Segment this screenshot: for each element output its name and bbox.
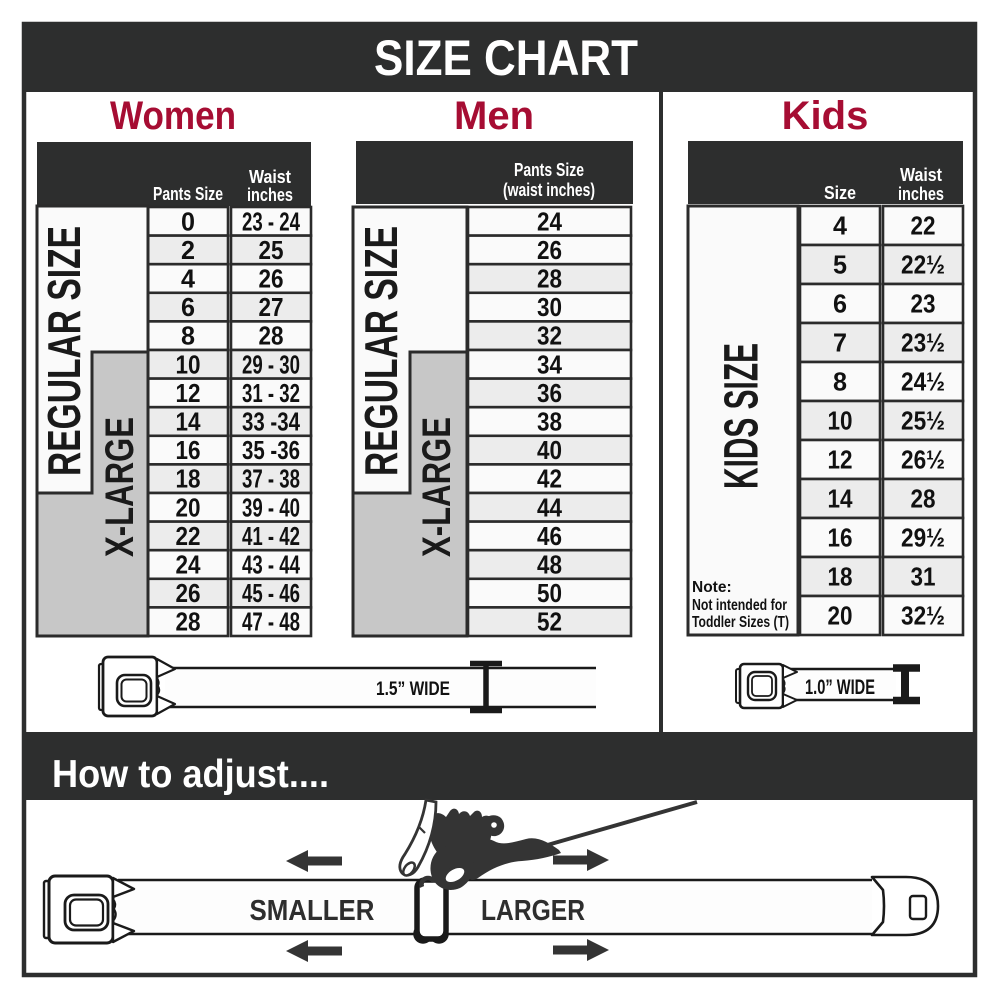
svg-text:24: 24 xyxy=(176,550,201,580)
svg-text:22: 22 xyxy=(911,211,936,241)
svg-text:25½: 25½ xyxy=(901,406,945,436)
svg-text:50: 50 xyxy=(537,578,562,608)
svg-text:52: 52 xyxy=(537,607,562,637)
svg-text:(waist inches): (waist inches) xyxy=(503,180,595,200)
svg-text:23: 23 xyxy=(911,289,936,319)
svg-text:22: 22 xyxy=(176,521,201,551)
svg-text:39 - 40: 39 - 40 xyxy=(242,492,300,522)
svg-text:Not intended for: Not intended for xyxy=(692,597,787,614)
svg-text:27: 27 xyxy=(259,292,284,322)
svg-text:28: 28 xyxy=(537,264,562,294)
svg-text:14: 14 xyxy=(176,407,201,437)
svg-text:42: 42 xyxy=(537,464,562,494)
svg-text:18: 18 xyxy=(176,464,201,494)
svg-text:X-LARGE: X-LARGE xyxy=(98,417,142,557)
svg-text:24½: 24½ xyxy=(901,367,945,397)
svg-text:Women: Women xyxy=(110,94,236,138)
svg-text:Waist: Waist xyxy=(900,165,942,185)
svg-text:34: 34 xyxy=(537,349,562,379)
svg-text:4: 4 xyxy=(833,211,848,241)
svg-text:12: 12 xyxy=(176,378,201,408)
svg-text:48: 48 xyxy=(537,550,562,580)
svg-text:10: 10 xyxy=(176,349,201,379)
svg-text:16: 16 xyxy=(828,523,853,553)
svg-text:47 - 48: 47 - 48 xyxy=(242,607,300,637)
svg-text:Pants Size: Pants Size xyxy=(514,160,584,180)
svg-text:23½: 23½ xyxy=(901,328,945,358)
svg-text:How to adjust....: How to adjust.... xyxy=(52,753,329,796)
svg-text:REGULAR SIZE: REGULAR SIZE xyxy=(355,226,407,476)
svg-text:Toddler Sizes (T): Toddler Sizes (T) xyxy=(692,614,789,631)
svg-text:6: 6 xyxy=(833,289,847,319)
svg-text:2: 2 xyxy=(181,235,195,265)
svg-text:46: 46 xyxy=(537,521,562,551)
svg-text:20: 20 xyxy=(828,601,853,631)
svg-text:inches: inches xyxy=(898,184,944,204)
svg-text:37 - 38: 37 - 38 xyxy=(242,464,300,494)
svg-text:0: 0 xyxy=(181,206,195,236)
svg-text:38: 38 xyxy=(537,407,562,437)
svg-text:Note:: Note: xyxy=(692,579,732,596)
svg-text:31 - 32: 31 - 32 xyxy=(242,378,300,408)
svg-text:35 -36: 35 -36 xyxy=(242,435,300,465)
svg-text:Waist: Waist xyxy=(249,167,291,187)
svg-text:10: 10 xyxy=(828,406,853,436)
svg-text:22½: 22½ xyxy=(901,250,945,280)
svg-text:16: 16 xyxy=(176,435,201,465)
svg-text:5: 5 xyxy=(833,250,847,280)
svg-text:LARGER: LARGER xyxy=(481,895,585,927)
svg-text:44: 44 xyxy=(537,492,562,522)
svg-text:25: 25 xyxy=(259,235,284,265)
svg-text:Kids: Kids xyxy=(782,94,869,138)
svg-text:SMALLER: SMALLER xyxy=(250,895,375,927)
svg-text:33 -34: 33 -34 xyxy=(242,407,300,437)
svg-text:14: 14 xyxy=(828,484,853,514)
svg-text:inches: inches xyxy=(247,185,293,205)
svg-text:7: 7 xyxy=(833,328,847,358)
svg-text:20: 20 xyxy=(176,492,201,522)
svg-text:26: 26 xyxy=(259,264,284,294)
svg-text:32½: 32½ xyxy=(901,601,945,631)
svg-text:24: 24 xyxy=(537,206,562,236)
svg-text:28: 28 xyxy=(911,484,936,514)
svg-text:30: 30 xyxy=(537,292,562,322)
svg-text:Men: Men xyxy=(454,94,534,138)
svg-text:1.5” WIDE: 1.5” WIDE xyxy=(376,679,450,700)
svg-text:12: 12 xyxy=(828,445,853,475)
svg-text:26½: 26½ xyxy=(901,445,945,475)
svg-text:45 - 46: 45 - 46 xyxy=(242,578,300,608)
svg-text:43 - 44: 43 - 44 xyxy=(242,550,300,580)
svg-text:28: 28 xyxy=(176,607,201,637)
svg-text:40: 40 xyxy=(537,435,562,465)
svg-text:26: 26 xyxy=(176,578,201,608)
svg-text:Pants Size: Pants Size xyxy=(153,184,223,204)
svg-text:18: 18 xyxy=(828,562,853,592)
svg-text:29½: 29½ xyxy=(901,523,945,553)
svg-text:Size: Size xyxy=(824,183,856,203)
svg-text:1.0” WIDE: 1.0” WIDE xyxy=(805,676,875,699)
svg-text:26: 26 xyxy=(537,235,562,265)
svg-text:8: 8 xyxy=(833,367,847,397)
svg-text:23 - 24: 23 - 24 xyxy=(242,206,300,236)
svg-text:SIZE CHART: SIZE CHART xyxy=(374,30,638,86)
svg-text:X-LARGE: X-LARGE xyxy=(415,417,459,557)
svg-text:29 - 30: 29 - 30 xyxy=(242,349,300,379)
svg-text:4: 4 xyxy=(181,264,196,294)
svg-text:31: 31 xyxy=(911,562,936,592)
svg-text:6: 6 xyxy=(181,292,195,322)
svg-text:8: 8 xyxy=(181,321,195,351)
svg-text:28: 28 xyxy=(259,321,284,351)
svg-text:KIDS SIZE: KIDS SIZE xyxy=(716,343,769,489)
svg-text:REGULAR SIZE: REGULAR SIZE xyxy=(38,226,90,476)
svg-text:36: 36 xyxy=(537,378,562,408)
svg-text:32: 32 xyxy=(537,321,562,351)
svg-text:41 - 42: 41 - 42 xyxy=(242,521,300,551)
